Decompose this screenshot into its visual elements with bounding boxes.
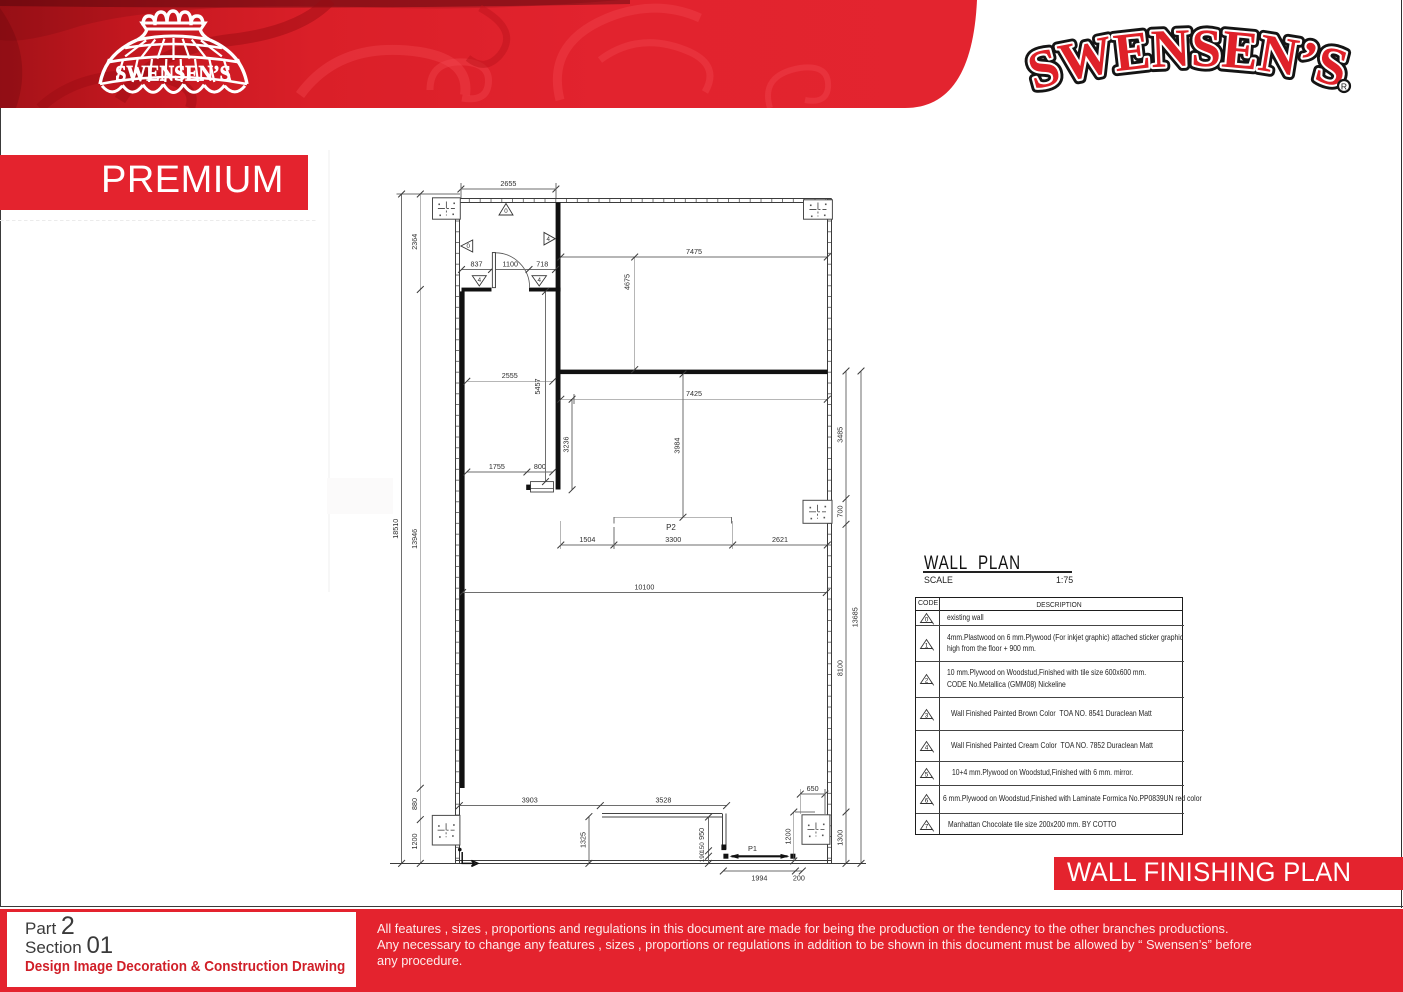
- svg-text:190: 190: [699, 851, 706, 862]
- svg-text:700: 700: [836, 505, 845, 517]
- svg-text:1504: 1504: [579, 535, 595, 544]
- svg-text:2621: 2621: [772, 535, 788, 544]
- svg-text:5: 5: [925, 772, 929, 779]
- svg-text:4: 4: [537, 277, 541, 284]
- svg-text:950: 950: [697, 828, 706, 840]
- svg-text:1: 1: [925, 642, 929, 649]
- svg-text:5457: 5457: [533, 379, 542, 395]
- svg-text:13946: 13946: [410, 529, 419, 549]
- svg-text:880: 880: [410, 798, 419, 810]
- svg-text:800: 800: [534, 462, 546, 471]
- svg-text:3903: 3903: [522, 795, 538, 804]
- svg-text:4: 4: [478, 277, 482, 284]
- svg-text:2364: 2364: [410, 234, 419, 250]
- svg-text:1325: 1325: [579, 832, 588, 848]
- svg-text:0: 0: [504, 208, 508, 215]
- svg-text:4: 4: [925, 744, 929, 751]
- svg-text:1100: 1100: [503, 259, 518, 268]
- svg-text:3528: 3528: [655, 795, 671, 804]
- svg-text:SWENSEN’S: SWENSEN’S: [1021, 18, 1354, 102]
- svg-text:18510: 18510: [391, 519, 400, 539]
- svg-text:SWENSEN’S: SWENSEN’S: [115, 61, 231, 86]
- svg-text:4: 4: [547, 236, 551, 243]
- svg-text:2: 2: [925, 678, 929, 685]
- svg-text:150: 150: [699, 842, 706, 853]
- svg-text:2655: 2655: [500, 179, 516, 188]
- svg-text:718: 718: [536, 259, 548, 268]
- svg-text:P2: P2: [666, 523, 676, 532]
- svg-text:837: 837: [471, 259, 483, 268]
- svg-text:1755: 1755: [489, 462, 505, 471]
- svg-text:200: 200: [793, 874, 805, 883]
- svg-text:6: 6: [925, 798, 929, 805]
- svg-text:1200: 1200: [783, 828, 792, 844]
- svg-text:3485: 3485: [836, 427, 845, 443]
- svg-text:10100: 10100: [634, 582, 654, 591]
- svg-text:8100: 8100: [836, 660, 845, 676]
- svg-text:2555: 2555: [502, 371, 518, 380]
- svg-text:3984: 3984: [673, 438, 682, 454]
- svg-text:4675: 4675: [623, 274, 632, 290]
- svg-text:3300: 3300: [665, 535, 681, 544]
- svg-text:1994: 1994: [751, 874, 767, 883]
- svg-text:0: 0: [925, 616, 929, 623]
- svg-text:1300: 1300: [836, 830, 845, 846]
- svg-text:1200: 1200: [410, 834, 419, 850]
- svg-text:3: 3: [925, 713, 929, 720]
- svg-text:R: R: [1341, 82, 1347, 92]
- svg-text:650: 650: [807, 784, 819, 793]
- svg-text:7: 7: [925, 823, 929, 830]
- svg-text:3236: 3236: [562, 437, 571, 453]
- svg-text:P1: P1: [748, 844, 757, 853]
- svg-text:7475: 7475: [686, 247, 702, 256]
- svg-text:7425: 7425: [686, 389, 702, 398]
- svg-text:0: 0: [466, 243, 470, 250]
- svg-text:13685: 13685: [851, 607, 860, 627]
